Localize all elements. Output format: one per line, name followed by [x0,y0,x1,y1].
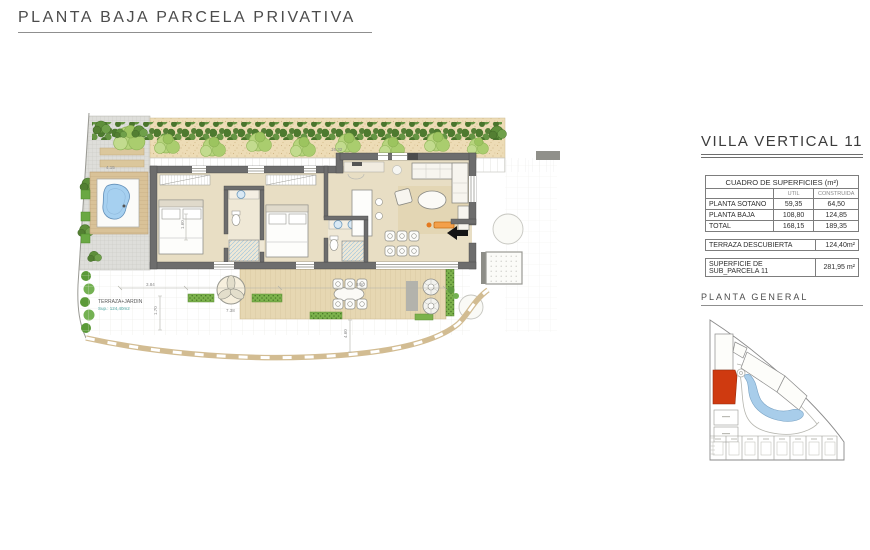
wardrobe [160,175,210,185]
pool-deck [90,172,148,234]
dim-terrace-c: 8.50 [356,282,365,287]
highlighted-parcel-villa-11 [713,370,737,404]
site-plan-title: PLANTA GENERAL [701,292,863,306]
terraza-label: TERRAZA DESCUBIERTA [706,240,816,251]
tree-outline [493,214,523,244]
row-construida: 189,35 [814,221,859,232]
neighbor-wall-stub [536,151,560,160]
dim-vert-c: 4.60 [343,329,348,338]
empty-cell [706,189,774,199]
toilet [232,215,240,226]
pool-ladder [123,205,126,208]
hanging-chair [423,279,439,295]
parcela-table: SUPERFICIE DE SUB_PARCELA 11 281,95 m² [705,258,859,277]
sink [334,221,342,229]
stool [376,213,383,220]
neighbor-patio [481,252,522,284]
lounger-mat [406,281,418,311]
hanging-chair [423,298,439,314]
row-label: TOTAL [706,221,774,232]
shrub [453,293,459,299]
col-header-construida: CONSTRUIDA [814,189,859,199]
page: { "page": { "title": "PLANTA BAJA PARCEL… [0,0,870,550]
site-plan [701,314,863,489]
row-util: 168,15 [773,221,814,232]
row-construida: 64,50 [814,199,859,210]
dim-walkway: 16.32 [331,147,343,152]
terraza-value: 124,40m² [816,240,859,251]
surfaces-table: CUADRO DE SUPERFICIES (m²) UTIL CONSTRUI… [705,175,859,232]
site-plan-canvas [701,314,853,484]
dim-terrace-a: 3.84 [146,282,155,287]
row-label: PLANTA SOTANO [706,199,774,210]
stool [376,199,383,206]
page-title: PLANTA BAJA PARCELA PRIVATIVA [18,9,372,33]
table-row: TOTAL 168,15 189,35 [706,221,859,232]
shrub [448,287,455,294]
row-util: 108,80 [773,210,814,221]
kitchen-island [352,190,372,236]
ceiling-lamp [393,166,402,175]
parcela-label: SUPERFICIE DE SUB_PARCELA 11 [706,259,816,277]
dim-vert-a: 1.70 [153,306,158,315]
row-label: PLANTA BAJA [706,210,774,221]
surfaces-table-header: CUADRO DE SUPERFICIES (m²) [706,176,859,189]
terraza-sup-label: Sup.: 124,40m2 [98,306,130,311]
table-row: PLANTA BAJA 108,80 124,85 [706,210,859,221]
bed-2 [266,205,308,257]
table-row: PLANTA SOTANO 59,35 64,50 [706,199,859,210]
shower [342,241,364,261]
dim-terrace-b: 7.38 [226,308,235,313]
coffee-table [418,191,446,209]
dim-pavers: 4.15 [106,165,115,170]
wardrobe [266,175,316,185]
terraza-table: TERRAZA DESCUBIERTA 124,40m² [705,239,859,251]
shower [229,240,259,261]
villa-title: VILLA VERTICAL 11 [701,133,863,155]
planter-tree [217,276,246,305]
terraza-jardin-label: TERRAZA+JARDIN [98,299,143,305]
neighbor-grid [505,160,557,332]
title-rule [701,157,863,158]
parcela-value: 281,95 m² [816,259,859,277]
row-util: 59,35 [773,199,814,210]
sidebar: VILLA VERTICAL 11 CUADRO DE SUPERFICIES … [701,133,863,489]
col-header-util: UTIL [773,189,814,199]
toilet [330,240,338,251]
dim-vert-b: 1.60 [180,220,185,229]
sink [237,191,245,199]
daybed [458,206,469,230]
row-construida: 124,85 [814,210,859,221]
